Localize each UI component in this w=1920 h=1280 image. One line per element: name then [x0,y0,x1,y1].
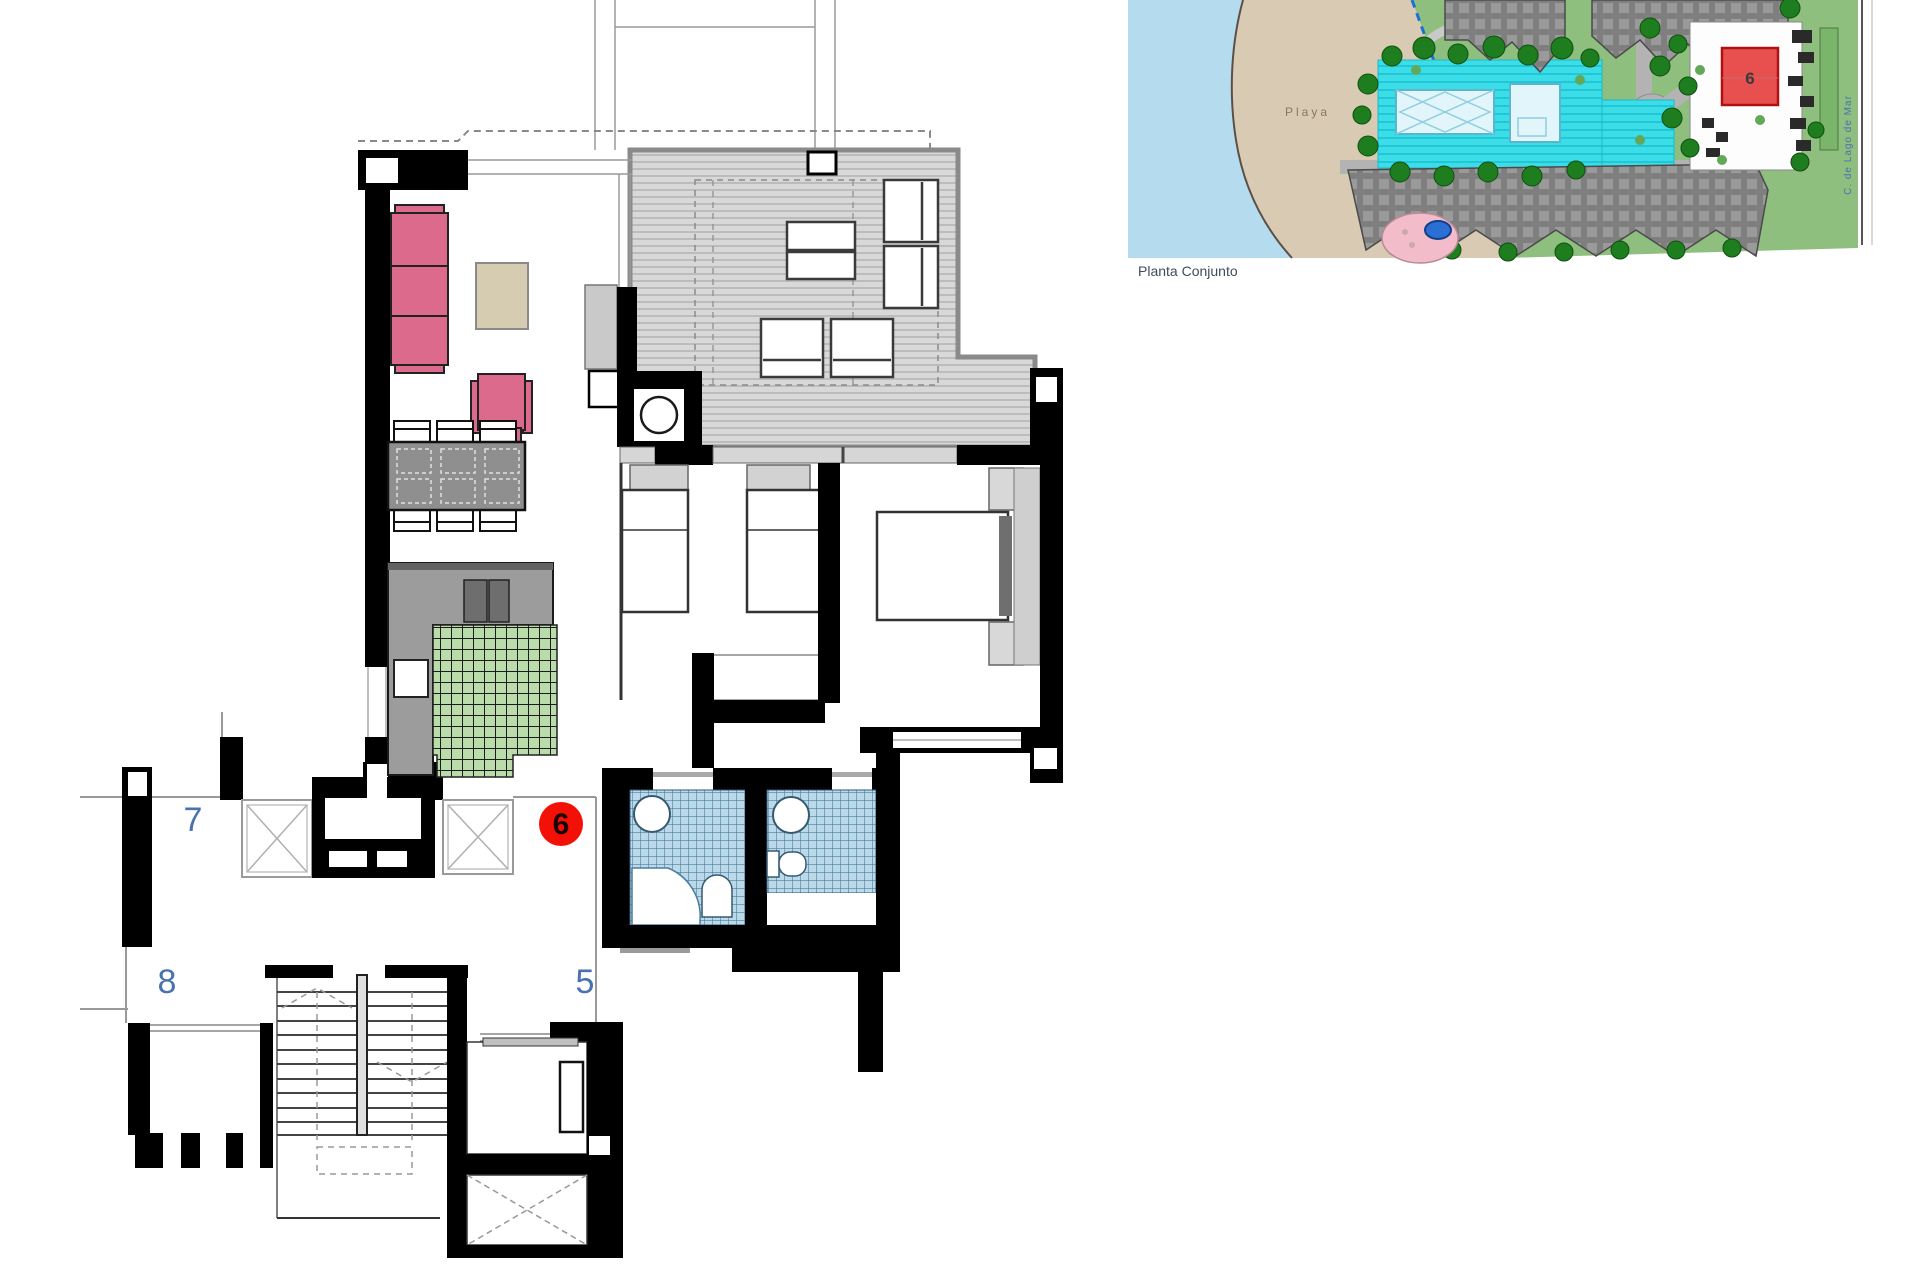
storage-room [128,1023,273,1168]
unit-6-badge: 6 [539,802,583,846]
rug [476,263,528,329]
window-sill [620,948,690,953]
single-bed [747,490,820,612]
upper-floor-outline [595,0,835,150]
page: 6 7 [0,0,1920,1280]
wardrobe [1014,468,1040,665]
dining-set [388,421,525,531]
kitchen-sink [394,660,428,697]
wall [818,463,840,703]
wardrobe [712,655,824,700]
planta-conjunto-caption: Planta Conjunto [1138,263,1238,279]
unit-8-label: 8 [158,963,177,1001]
highlighted-unit: 6 [1722,48,1778,105]
elevator [443,800,513,874]
bathroom-1 [630,790,747,925]
kitchen-tile-floor [433,625,557,777]
oven [489,580,509,622]
window [368,667,386,737]
playa-label: Playa [1285,105,1330,119]
toilet [779,852,806,876]
site-plan: Playa [1128,0,1872,279]
master-bedroom [860,445,1063,783]
window [589,371,619,407]
wall [365,190,390,667]
stairwell-block: 8 5 [128,963,623,1258]
drawing: 6 7 [0,0,1920,1280]
toilet [702,875,732,917]
window [128,772,147,796]
bathrooms [602,753,900,1072]
headboard [999,516,1012,616]
door-opening [653,768,713,790]
window [620,447,655,463]
unit-6-badge-number: 6 [553,808,570,841]
terrace-column [808,152,836,174]
elevator-door [483,1038,578,1046]
double-bed [877,512,1008,620]
door-opening [832,768,872,790]
bathroom-2 [767,790,876,925]
single-bed [622,490,688,612]
street-label: C. de Lago de Mar [1843,95,1854,195]
wall [1040,445,1063,753]
roof-overhang-dashed [358,131,930,150]
jacuzzi [1425,221,1451,239]
cooktop [464,580,487,622]
dining-table [388,442,525,510]
window [713,447,957,463]
sink [634,796,670,832]
highlighted-unit-number: 6 [1745,69,1754,88]
elevator [242,800,312,877]
landing: 6 7 [80,712,596,1085]
sink [773,797,809,833]
pool [1396,84,1560,142]
toilet-tank [767,851,779,877]
sofa [391,205,448,373]
terrace-table [787,222,855,279]
headboard [630,465,688,490]
floor-plan: 6 7 [80,0,1063,1258]
kitchen [388,563,557,777]
headboard [747,465,810,490]
service-elevator [447,1022,623,1258]
unit-7-label: 7 [184,801,203,839]
spa-area [1382,213,1458,263]
unit-5-label: 5 [576,963,595,1001]
bbq-corner [633,388,685,442]
window [366,158,398,183]
stair-rail [357,975,367,1135]
cabinet [585,285,617,369]
floor-line [80,712,596,1085]
elevator-vestibule [312,764,435,878]
stairwell [265,965,468,1257]
